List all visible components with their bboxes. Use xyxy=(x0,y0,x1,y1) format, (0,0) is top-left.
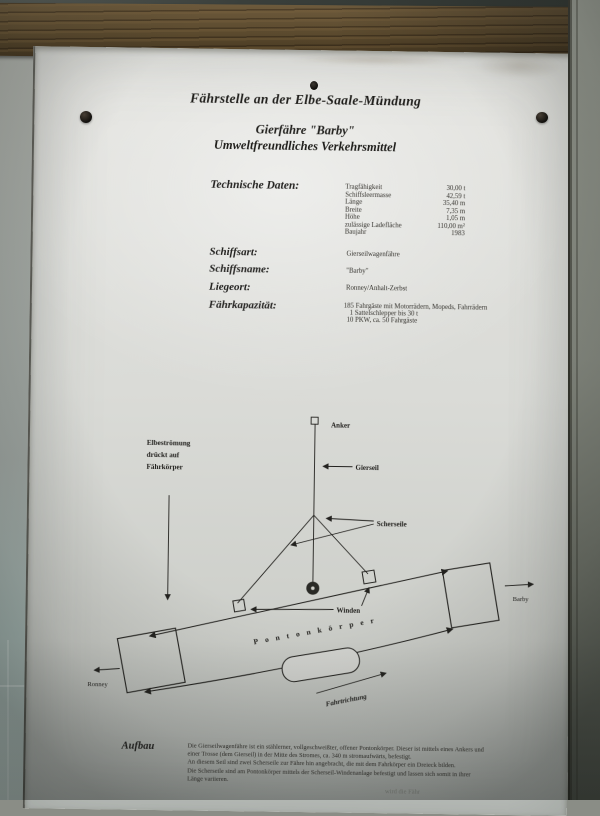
winden-pointer-arrow-icon xyxy=(252,608,334,610)
ferry-info-sign: Fährstelle an der Elbe-Saale-Mündung Gie… xyxy=(23,46,578,816)
ramp-left xyxy=(117,628,185,693)
ship-type-label: Schiffsart: xyxy=(209,246,257,259)
ramp-right xyxy=(442,563,499,628)
current-label-line2: drückt auf xyxy=(147,451,180,459)
scherseil-left-cable xyxy=(238,514,314,604)
deck-cabin xyxy=(280,646,361,683)
current-arrow-icon xyxy=(168,495,169,599)
aufbau-heading: Aufbau xyxy=(122,741,155,752)
sign-content: Fährstelle an der Elbe-Saale-Mündung Gie… xyxy=(25,46,578,815)
barby-arrow-icon xyxy=(505,584,533,586)
berth-value: Ronney/Anhalt-Zerbst xyxy=(346,285,407,293)
gierseil-label: Gierseil xyxy=(355,464,378,472)
winch-right-icon xyxy=(362,570,376,584)
ship-type-value: Gierseilwagenfähre xyxy=(346,251,399,259)
gierseil-cable xyxy=(313,424,315,582)
pontoon-body-label: Pontonkörper xyxy=(253,615,382,647)
capacity-line: 10 PKW, ca. 50 Fahrgäste xyxy=(347,317,418,325)
screw-icon xyxy=(80,111,92,123)
ship-name-label: Schiffsname: xyxy=(209,263,269,276)
technical-data-heading: Technische Daten: xyxy=(210,179,299,192)
row-value: 1983 xyxy=(451,230,465,238)
capacity-label: Fährkapazität: xyxy=(209,299,277,312)
sign-title-block: Fährstelle an der Elbe-Saale-Mündung Gie… xyxy=(34,88,577,158)
tile-joint-vertical xyxy=(7,640,9,800)
scherseile-label: Scherseile xyxy=(377,520,407,528)
ferry-diagram: Elbeströmung drückt auf Fährkörper Anker… xyxy=(83,402,557,719)
scherseile-pointer-arrow-icon xyxy=(327,518,374,521)
row-label: Baujahr xyxy=(345,229,367,237)
right-wall xyxy=(568,0,600,800)
technical-data-table: Tragfähigkeit 30,00 t Schiffsleermasse 4… xyxy=(345,184,466,238)
current-label-line1: Elbeströmung xyxy=(147,439,191,448)
winden-pointer-arrow-icon xyxy=(362,588,369,606)
current-label-line3: Fährkörper xyxy=(146,463,183,472)
berth-label: Liegeort: xyxy=(209,281,251,294)
aufbau-paragraph: Die Gierseilwagenfähre ist ein stählerne… xyxy=(187,742,568,788)
ronney-label: Ronney xyxy=(87,681,108,688)
screw-icon xyxy=(536,112,548,123)
cut-off-text-fragment: wird die Fähr xyxy=(385,788,420,795)
ship-name-value: "Barby" xyxy=(346,268,368,275)
fahrtrichtung-label: Fahrtrichtung xyxy=(325,692,368,708)
mount-hole-icon xyxy=(310,81,318,90)
barby-label: Barby xyxy=(513,596,530,603)
anchor-label: Anker xyxy=(331,421,350,429)
ronney-arrow-icon xyxy=(95,668,120,670)
anchor-icon xyxy=(311,417,318,424)
scherseil-right-cable xyxy=(313,515,369,574)
sign-title: Fährstelle an der Elbe-Saale-Mündung xyxy=(35,88,577,112)
winden-label: Winden xyxy=(336,607,360,615)
